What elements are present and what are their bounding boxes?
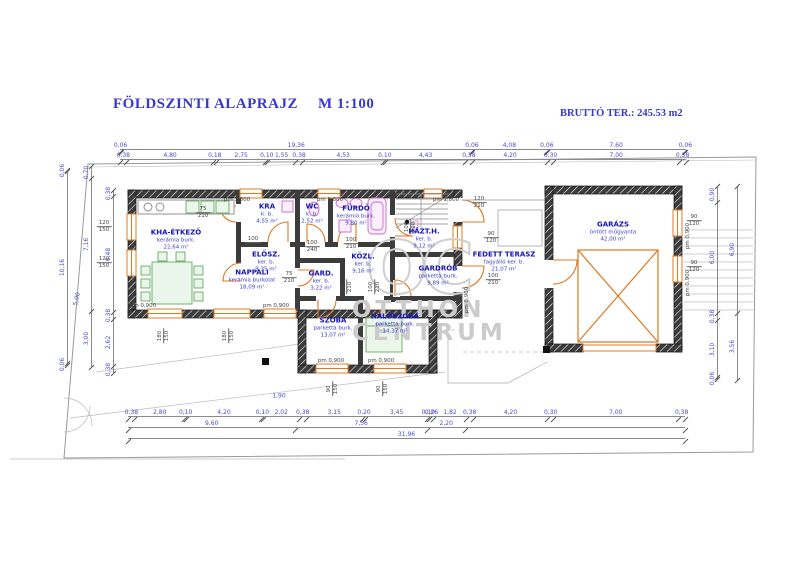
opening-height: 150 <box>97 264 112 270</box>
room-area: 3,22 m² <box>308 286 333 293</box>
dimension-value: 2,62 <box>105 336 112 349</box>
dimension-row: 0,0610,160,06 <box>58 170 68 365</box>
dimension-segment: 4,80 <box>127 150 213 160</box>
room-label-kozl: KÖZL.ker. b.9,16 m² <box>351 252 374 275</box>
dimension-value: 3,15 <box>327 409 340 416</box>
dimension-value: 0,38 <box>105 363 112 376</box>
room-name: FÜRDŐ <box>337 204 375 213</box>
opening-size-label: 120150 <box>97 256 112 270</box>
opening-height: 210 <box>196 214 211 220</box>
opening-width: 75 <box>282 271 297 278</box>
dimension-value: 6,00 <box>709 251 716 264</box>
room-area: 4,55 m² <box>256 219 278 226</box>
opening-width: 90 <box>376 382 383 397</box>
small-dimension: 1,90 <box>272 393 285 400</box>
dimension-value: 7,56 <box>355 420 368 427</box>
room-label-haloszoba: HÁLÓSZOBAparketta burk.14,37 m² <box>371 312 419 335</box>
room-area: 9,16 m² <box>351 269 374 276</box>
opening-size-label: 90120 <box>484 231 499 245</box>
dimension-value: 4,20 <box>217 409 230 416</box>
room-name: KÖZL. <box>351 252 374 261</box>
opening-size-label: 120150 <box>97 220 112 234</box>
dimension-value: 31,96 <box>398 431 415 438</box>
parapet-annotation: pm 0,900 <box>685 270 691 296</box>
opening-width: 90 <box>326 382 333 397</box>
opening-height: 210 <box>282 279 297 285</box>
room-name: HÁZT.H. <box>408 227 439 236</box>
room-label-garazs: GARÁZSöntött műgyanta42,00 m² <box>590 220 636 243</box>
dimension-row: 0,707,163,00 <box>82 166 92 367</box>
room-label-gard: GARD.ker. b.3,22 m² <box>308 269 333 292</box>
room-label-hazth: HÁZT.H.ker. b.9,12 m² <box>408 227 439 250</box>
opening-height: 150 <box>230 329 236 344</box>
dimension-segment: 0,38 <box>299 407 306 417</box>
room-area: 9,89 m² <box>418 281 457 288</box>
room-name: SZOBA <box>313 316 352 325</box>
dimension-segment: 1,82 <box>434 407 466 417</box>
dimension-value: 1,82 <box>443 409 456 416</box>
opening-height: 150 <box>334 382 340 397</box>
opening-size-label: 75210 <box>282 271 297 285</box>
dimension-segment: 6,00 <box>708 203 718 314</box>
dimension-segment: 2,20 <box>427 418 465 428</box>
opening-width: 100 <box>344 237 359 244</box>
opening-height: 150 <box>384 382 390 397</box>
dimension-segment: 0,38 <box>679 150 686 160</box>
dimension-value: 3,00 <box>83 332 90 345</box>
dimension-value: 4,20 <box>504 409 517 416</box>
dimension-segment: 0,06 <box>708 378 718 379</box>
opening-size-label: 100210 <box>344 237 359 251</box>
dimension-row: 0,384,800,182,750,101,550,384,530,104,43… <box>120 150 686 160</box>
dimension-value: 7,60 <box>609 142 622 149</box>
dimension-value: 0,06 <box>59 358 66 371</box>
opening-size-label: 180150 <box>222 329 236 344</box>
opening-size-label: 90150 <box>376 382 390 397</box>
dimension-segment: 3,15 <box>306 407 362 417</box>
dimension-segment: 4,53 <box>302 150 384 160</box>
dimension-segment: 7,00 <box>553 407 678 417</box>
dimension-value: 10,16 <box>59 259 66 276</box>
dimension-segment: 7,60 <box>547 140 685 150</box>
opening-size-label: 100210 <box>368 280 382 295</box>
parapet-annotation: pm 0,900 <box>130 303 156 309</box>
dimension-value: 9,60 <box>205 420 218 427</box>
dimension-segment: 0,38 <box>104 366 114 373</box>
dimension-segment: 2,62 <box>104 319 114 366</box>
opening-width: 100 <box>340 280 347 295</box>
opening-height: 240 <box>305 248 320 254</box>
room-name: ELŐSZ. <box>252 250 280 259</box>
dimension-segment: 0,38 <box>465 150 472 160</box>
opening-height: 210 <box>344 245 359 251</box>
room-label-gardrob: GARDRÓBparketta burk.9,89 m² <box>418 264 457 287</box>
dimension-segment: 2,02 <box>263 407 299 417</box>
small-dimension: 5,00 <box>72 292 82 307</box>
dimension-row: 31,96 <box>128 429 685 439</box>
room-area: 14,37 m² <box>371 329 419 336</box>
dimension-segment: 6,48 <box>104 197 114 313</box>
opening-width: 100 <box>486 273 501 280</box>
dimension-segment: 0,38 <box>120 150 127 160</box>
dimension-value: 7,00 <box>609 409 622 416</box>
opening-size-label: 100240 <box>305 240 320 254</box>
dimension-value: 3,56 <box>729 340 736 353</box>
dimension-segment: 0,06 <box>58 364 68 365</box>
opening-width: 180 <box>222 329 229 344</box>
opening-width: 120 <box>97 256 112 263</box>
dimension-row: 0,386,480,382,620,38 <box>104 190 114 373</box>
dimension-row: 0,382,800,104,200,102,020,383,150,203,45… <box>128 407 685 417</box>
room-label-kra: KRAk. b.4,55 m² <box>256 202 278 225</box>
opening-height: 120 <box>484 239 499 245</box>
room-area: 2,52 m² <box>301 219 323 226</box>
dimension-value: 7,00 <box>610 152 623 159</box>
dimension-value: 3,10 <box>709 342 716 355</box>
room-area: 9,35 m² <box>252 267 280 274</box>
dimension-value: 0,70 <box>83 166 90 179</box>
opening-size-label: 100210 <box>486 273 501 287</box>
dimension-segment: 0,90 <box>708 186 718 203</box>
dimension-segment: 0,38 <box>128 407 135 417</box>
room-name: FEDETT TERASZ <box>473 250 536 259</box>
room-area: 13,07 m² <box>313 333 352 340</box>
opening-width: 75 <box>196 206 211 213</box>
opening-height: 210 <box>376 280 382 295</box>
dimension-value: 2,75 <box>234 152 247 159</box>
dimension-value: 1,55 <box>275 152 288 159</box>
dimension-row: 0,0619,360,064,080,067,600,06 <box>120 140 686 150</box>
dimension-value: 0,38 <box>676 152 689 159</box>
opening-width: 100 <box>368 280 375 295</box>
dimension-segment: 4,43 <box>386 150 466 160</box>
room-label-wc: WCk. b.2,52 m² <box>301 202 323 225</box>
room-name: KHA-ÉTKEZŐ <box>151 228 201 237</box>
dimension-value: 0,06 <box>709 372 716 385</box>
dimension-value: 4,20 <box>503 152 516 159</box>
parapet-annotation: pm 1,800 <box>433 197 459 203</box>
dimension-segment <box>465 418 685 428</box>
parapet-annotation: pm 1,800 <box>224 197 250 203</box>
opening-width: 100 <box>246 236 261 243</box>
room-label-furdo: FÜRDŐkerámia burk.9,80 m² <box>337 204 375 227</box>
floor-plan-sheet: FÖLDSZINTI ALAPRAJZM 1:100 BRUTTÓ TER.: … <box>0 0 800 565</box>
room-label-fedett-terasz: FEDETT TERASZfagyálló ker. b.21,07 m² <box>473 250 536 273</box>
room-area: 42,00 m² <box>590 237 636 244</box>
dimension-value: 2,20 <box>440 420 453 427</box>
dimension-row: 9,607,562,20 <box>128 418 685 428</box>
dimension-segment: 7,00 <box>553 150 679 160</box>
dimension-segment: 3,00 <box>82 311 92 367</box>
dimension-value: 4,80 <box>163 152 176 159</box>
room-label-elosz: ELŐSZ.ker. b.9,35 m² <box>252 250 280 273</box>
room-label-szoba: SZOBAparketta burk.13,07 m² <box>313 316 352 339</box>
opening-height: 210 <box>486 281 501 287</box>
room-area: 9,12 m² <box>408 244 439 251</box>
dimension-segment: 4,20 <box>187 407 262 417</box>
dimension-row: 6,903,56 <box>728 186 738 380</box>
dimension-segment: 9,60 <box>128 418 295 428</box>
opening-width: 90 <box>484 231 499 238</box>
parapet-annotation: pm 0,900 <box>263 303 289 309</box>
opening-width: 90 <box>687 214 702 221</box>
opening-size-label: 120210 <box>472 196 487 210</box>
dimension-segment: 0,06 <box>685 140 686 150</box>
dimension-segment: 2,75 <box>216 150 265 160</box>
dimension-value: 0,90 <box>709 187 716 200</box>
opening-height: 240 <box>246 244 261 250</box>
dimension-segment: 0,38 <box>296 150 303 160</box>
room-name: WC <box>301 202 323 211</box>
opening-height: 210 <box>472 204 487 210</box>
dimension-segment: 0,38 <box>678 407 685 417</box>
opening-width: 120 <box>472 196 487 203</box>
dimension-segment: 2,80 <box>135 407 185 417</box>
opening-height: 150 <box>165 329 171 344</box>
parapet-annotation: pm 0,900 <box>318 358 344 364</box>
opening-height: 150 <box>97 228 112 234</box>
opening-width: 100 <box>305 240 320 247</box>
room-name: GARÁZS <box>590 220 636 229</box>
room-label-kha-etkezo: KHA-ÉTKEZŐkerámia burk.22,64 m² <box>151 228 201 251</box>
dimension-value: 6,90 <box>729 243 736 256</box>
parapet-annotation: pm 0,900 <box>464 287 470 313</box>
dimension-value: 7,16 <box>83 238 90 251</box>
annotation-overlay: KHA-ÉTKEZŐkerámia burk.22,64 m²NAPPALIke… <box>0 0 800 565</box>
dimension-segment: 4,08 <box>472 140 546 150</box>
opening-width: 90 <box>687 260 702 267</box>
dimension-segment: 10,16 <box>58 171 68 364</box>
room-name: GARD. <box>308 269 333 278</box>
dimension-row: 0,906,000,383,100,06 <box>708 186 718 379</box>
dimension-value: 4,08 <box>503 142 516 149</box>
dimension-value: 4,43 <box>419 152 432 159</box>
dimension-segment: 3,10 <box>708 321 718 378</box>
dimension-value: 2,02 <box>275 409 288 416</box>
dimension-segment: 19,36 <box>121 140 471 150</box>
dimension-value: 0,38 <box>675 409 688 416</box>
dimension-segment: 7,16 <box>82 179 92 312</box>
dimension-segment: 7,56 <box>295 418 427 428</box>
room-area: 21,07 m² <box>473 267 536 274</box>
dimension-segment: 6,90 <box>728 186 738 314</box>
dimension-value: 19,36 <box>288 142 305 149</box>
dimension-segment: 4,20 <box>473 407 548 417</box>
dimension-value: 3,45 <box>390 409 403 416</box>
room-name: GARDRÓB <box>418 264 457 273</box>
opening-width: 180 <box>157 329 164 344</box>
parapet-annotation: pm 0,900 <box>368 358 394 364</box>
opening-size-label: 180150 <box>157 329 171 344</box>
room-name: HÁLÓSZOBA <box>371 312 419 321</box>
dimension-segment: 4,20 <box>472 150 548 160</box>
parapet-annotation: pm 0,900 <box>685 223 691 249</box>
opening-size-label: 90150 <box>326 382 340 397</box>
room-area: 18,09 m² <box>229 285 276 292</box>
room-area: 9,80 m² <box>337 221 375 228</box>
room-name: KRA <box>256 202 278 211</box>
dimension-value: 0,06 <box>679 142 692 149</box>
dimension-segment: 3,56 <box>728 314 738 380</box>
opening-size-label: 75210 <box>196 206 211 220</box>
opening-size-label: 100210 <box>340 280 354 295</box>
room-area: 22,64 m² <box>151 245 201 252</box>
opening-height: 210 <box>348 280 354 295</box>
dimension-segment: 0,38 <box>466 407 473 417</box>
dimension-segment: 3,45 <box>366 407 428 417</box>
dimension-value: 2,80 <box>153 409 166 416</box>
opening-width: 120 <box>97 220 112 227</box>
dimension-segment: 31,96 <box>128 429 685 439</box>
dimension-value: 4,53 <box>337 152 350 159</box>
opening-size-label: 100240 <box>246 236 261 250</box>
